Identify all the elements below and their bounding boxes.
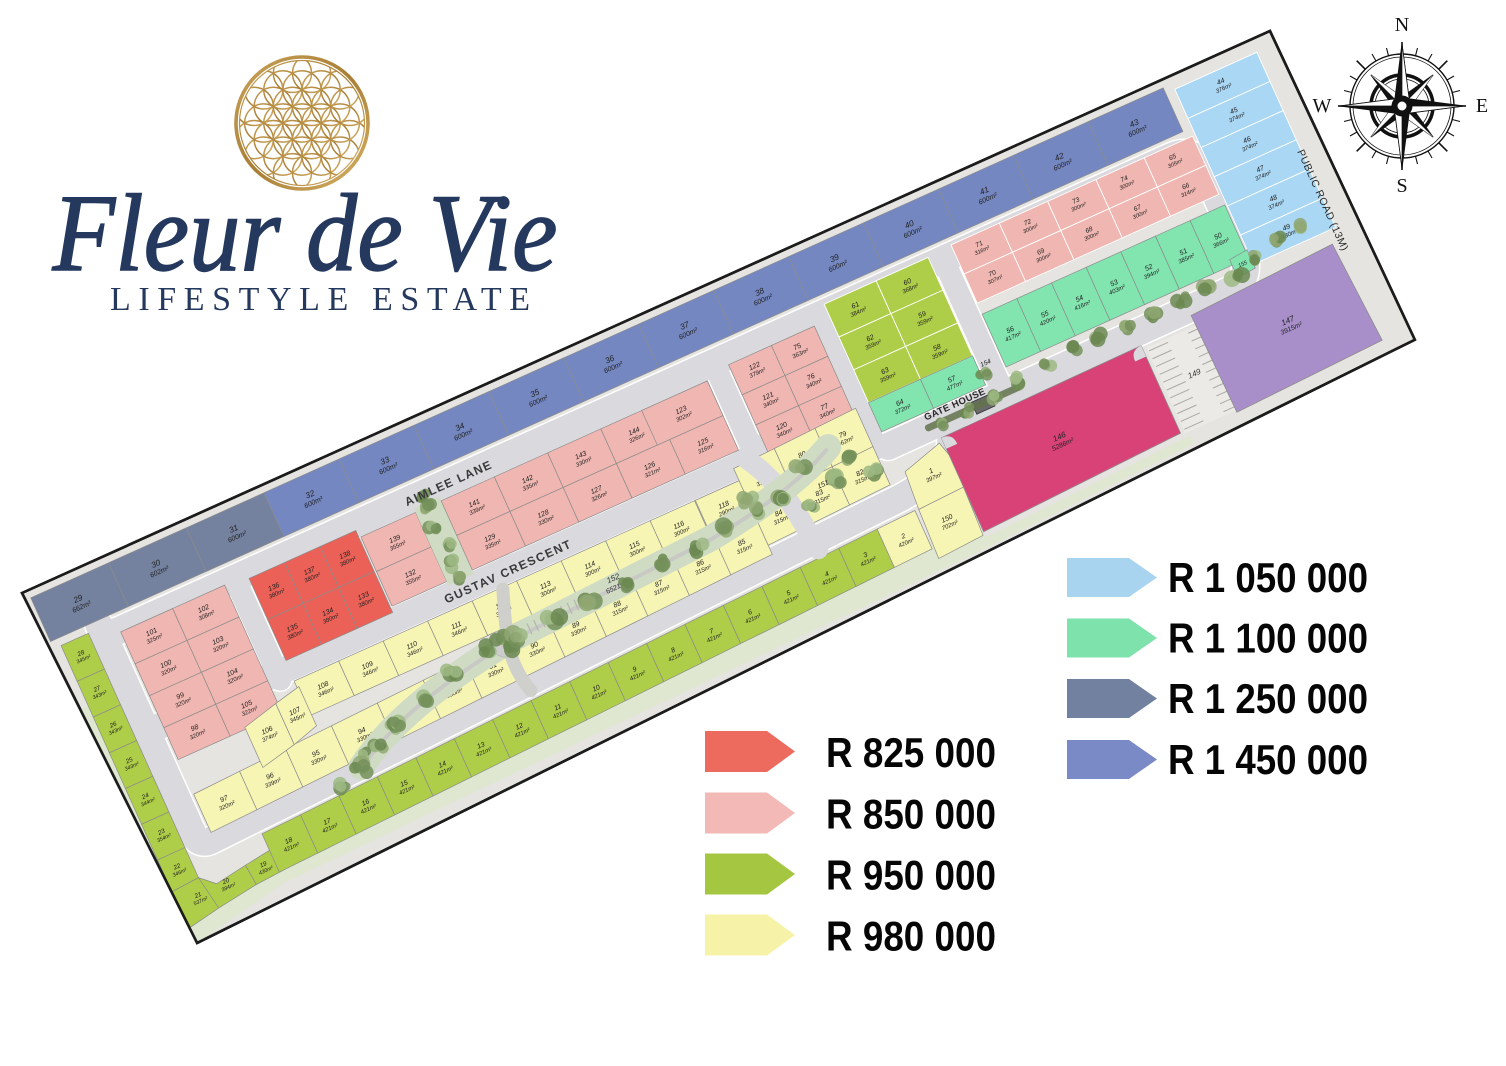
svg-text:N: N [1395, 14, 1409, 36]
svg-text:R 825 000: R 825 000 [826, 729, 996, 776]
svg-text:R 1 050 000: R 1 050 000 [1168, 554, 1368, 601]
svg-text:R 1 450 000: R 1 450 000 [1168, 736, 1368, 783]
svg-text:E: E [1476, 95, 1488, 117]
svg-text:R 980 000: R 980 000 [826, 913, 996, 960]
svg-text:W: W [1313, 95, 1332, 117]
svg-text:Fleur de Vie: Fleur de Vie [52, 172, 558, 294]
svg-text:R 950 000: R 950 000 [826, 852, 996, 899]
svg-text:R 1 100 000: R 1 100 000 [1168, 615, 1368, 662]
svg-text:R 1 250 000: R 1 250 000 [1168, 675, 1368, 722]
svg-text:R 850 000: R 850 000 [826, 791, 996, 838]
svg-text:S: S [1396, 175, 1407, 197]
